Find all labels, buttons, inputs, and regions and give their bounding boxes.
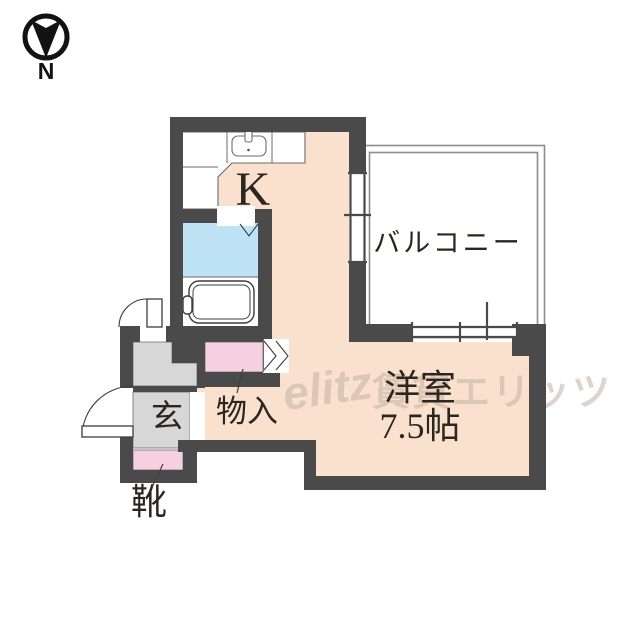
wall-segment bbox=[183, 450, 197, 483]
entrance-label: 玄 bbox=[151, 398, 183, 434]
wall-segment bbox=[304, 476, 546, 490]
shower-icon bbox=[183, 296, 192, 314]
washroom-floor bbox=[183, 223, 258, 277]
main-room-label: 洋室 bbox=[384, 368, 456, 408]
shoe-cabinet bbox=[133, 450, 183, 470]
window-balcony bbox=[412, 302, 518, 342]
bath-block bbox=[183, 223, 258, 326]
closet-folding-door bbox=[263, 339, 289, 373]
floorplan-drawing: elitz 賃貸エリッツ bbox=[0, 0, 640, 640]
front-door bbox=[119, 299, 162, 327]
wall-segment bbox=[120, 326, 133, 388]
storage-label: 物入 bbox=[216, 394, 278, 429]
balcony-label: バルコニー bbox=[373, 228, 522, 258]
side-door bbox=[82, 386, 133, 437]
wall-segment bbox=[170, 117, 366, 132]
wall-segment bbox=[258, 209, 272, 342]
bathtub bbox=[189, 281, 254, 323]
window-glass bbox=[350, 173, 365, 262]
main-room-size: 7.5帖 bbox=[379, 406, 460, 446]
compass-north-label: N bbox=[38, 58, 55, 84]
wall-segment bbox=[178, 440, 316, 452]
compass: N bbox=[25, 16, 67, 84]
wall-segment bbox=[349, 117, 366, 173]
wall-segment bbox=[170, 117, 183, 340]
wall-segment bbox=[529, 340, 546, 490]
storage-closet-floor bbox=[205, 342, 263, 372]
entrance-opening bbox=[190, 392, 205, 440]
kitchen-label: K bbox=[236, 163, 271, 216]
door-swing-arc bbox=[119, 299, 147, 327]
drain-icon bbox=[247, 149, 250, 152]
shoes-label: 靴 bbox=[131, 482, 167, 522]
entrance-step-edge bbox=[133, 386, 197, 392]
wall-segment bbox=[166, 326, 272, 342]
wall-segment bbox=[172, 342, 205, 363]
door-leaf bbox=[147, 299, 162, 327]
faucet-icon bbox=[245, 131, 252, 142]
floorplan-page: elitz 賃貸エリッツ bbox=[0, 0, 640, 640]
wall-segment bbox=[349, 324, 412, 342]
door-leaf bbox=[82, 426, 133, 437]
